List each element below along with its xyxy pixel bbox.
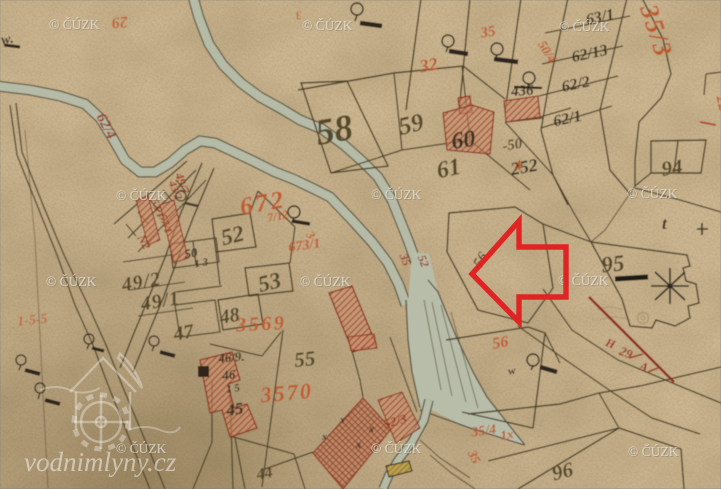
- svg-text:35: 35: [478, 23, 497, 42]
- svg-text:55: 55: [293, 346, 316, 372]
- svg-text:x: x: [355, 440, 361, 451]
- svg-text:46/9.: 46/9.: [217, 348, 246, 365]
- svg-text:© ČÚZK: © ČÚZK: [628, 444, 679, 459]
- svg-text:1 5: 1 5: [226, 382, 242, 396]
- svg-text:© ČÚZK: © ČÚZK: [559, 19, 610, 34]
- svg-text:© ČÚZK: © ČÚZK: [46, 274, 97, 289]
- svg-text:44: 44: [254, 464, 274, 484]
- svg-text:56: 56: [491, 333, 510, 353]
- svg-text:© ČÚZK: © ČÚZK: [627, 186, 678, 201]
- svg-text:© ČÚZK: © ČÚZK: [371, 187, 422, 202]
- svg-text:© ČÚZK: © ČÚZK: [371, 441, 422, 456]
- svg-text:1-5-5: 1-5-5: [17, 312, 49, 330]
- svg-text:3570: 3570: [258, 378, 314, 408]
- svg-text:x: x: [339, 415, 345, 426]
- svg-text:© ČÚZK: © ČÚZK: [302, 18, 353, 33]
- svg-text:x: x: [368, 424, 374, 435]
- svg-text:© ČÚZK: © ČÚZK: [116, 188, 167, 203]
- svg-text:x: x: [321, 432, 327, 443]
- svg-text:29: 29: [111, 13, 129, 31]
- svg-text:436: 436: [510, 83, 535, 101]
- svg-text:94: 94: [660, 154, 684, 181]
- svg-text:32: 32: [417, 54, 439, 77]
- svg-text:3569: 3569: [235, 312, 287, 337]
- svg-text:45: 45: [224, 399, 245, 420]
- svg-text:58: 58: [312, 107, 356, 154]
- svg-text:1 3: 1 3: [193, 256, 209, 270]
- svg-text:46: 46: [220, 366, 236, 383]
- svg-text:60: 60: [450, 126, 477, 155]
- svg-text:© ČÚZK: © ČÚZK: [116, 441, 167, 456]
- svg-text:© ČÚZK: © ČÚZK: [49, 17, 100, 32]
- svg-text:© ČÚZK: © ČÚZK: [300, 274, 351, 289]
